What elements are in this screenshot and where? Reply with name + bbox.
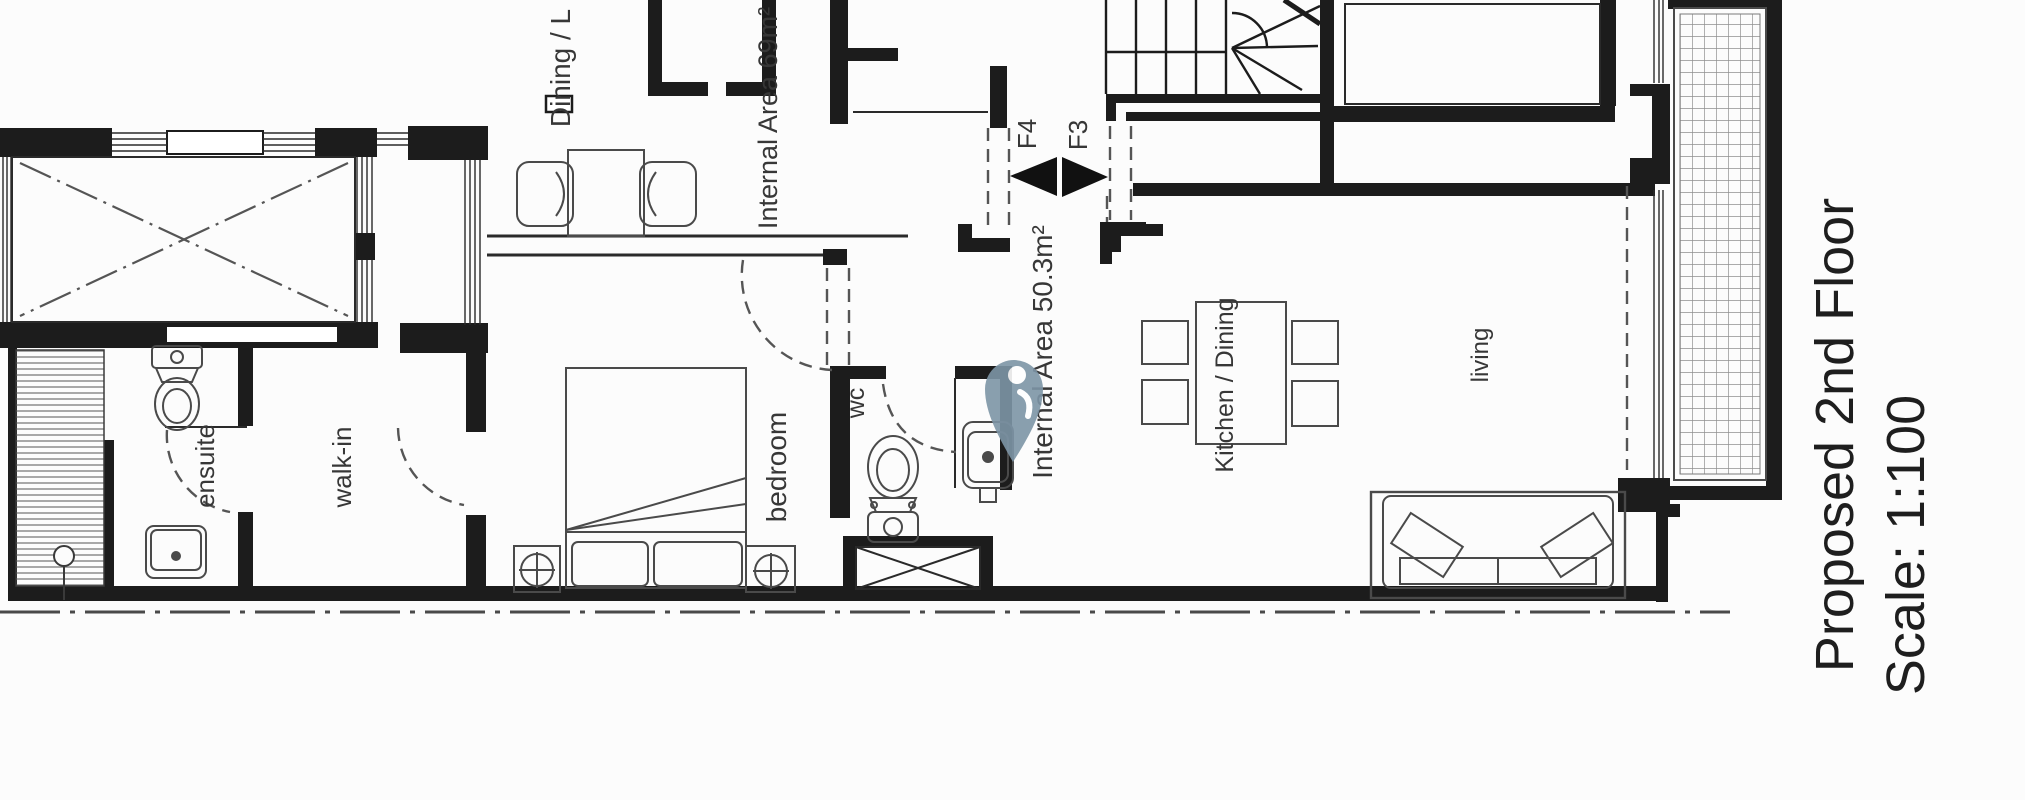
bed bbox=[514, 368, 795, 592]
label-ensuite: ensuite bbox=[190, 424, 220, 508]
label-walk-in: walk-in bbox=[327, 427, 357, 509]
label-living: living bbox=[1467, 328, 1494, 383]
label-bedroom: bedroom bbox=[761, 412, 792, 523]
window-panel-top bbox=[167, 131, 263, 154]
label-f4: F4 bbox=[1012, 119, 1042, 149]
label-f3: F3 bbox=[1063, 120, 1093, 150]
label-kitchen-dining: Kitchen / Dining bbox=[1211, 297, 1239, 472]
window-panel bbox=[166, 326, 338, 343]
title-block: Proposed 2nd Floor Scale: 1:100 bbox=[1805, 198, 1936, 695]
flight-arrow-right-icon bbox=[1062, 157, 1108, 197]
floorplan-page: Dining / L Internal Area 69m² F4 F3 ensu… bbox=[0, 0, 2025, 800]
label-wc: wc bbox=[842, 388, 870, 420]
label-internal-area-upper: Internal Area 69m² bbox=[753, 7, 783, 229]
floorplan-drawing: Dining / L Internal Area 69m² F4 F3 ensu… bbox=[0, 0, 2025, 800]
wc-fixtures bbox=[868, 422, 1013, 542]
hatched-void bbox=[16, 350, 104, 600]
flight-arrow-left-icon bbox=[1010, 157, 1057, 196]
drawing-scale: Scale: 1:100 bbox=[1876, 395, 1936, 695]
armchair-set bbox=[517, 150, 696, 236]
structure-lines bbox=[165, 4, 1600, 488]
drawing-title: Proposed 2nd Floor bbox=[1805, 198, 1865, 672]
service-shaft bbox=[856, 547, 980, 589]
label-dining-living: Dining / L bbox=[545, 9, 576, 127]
sofa bbox=[1371, 492, 1625, 598]
courtyard-shaft bbox=[12, 157, 355, 322]
wall-notches bbox=[1618, 96, 1652, 158]
balcony-tiles bbox=[1674, 8, 1766, 480]
staircase bbox=[1106, 0, 1320, 94]
flight-markers bbox=[1010, 157, 1108, 197]
dining-table bbox=[1142, 302, 1338, 444]
label-internal-area-lower: Internal Area 50.3m² bbox=[1027, 225, 1058, 479]
